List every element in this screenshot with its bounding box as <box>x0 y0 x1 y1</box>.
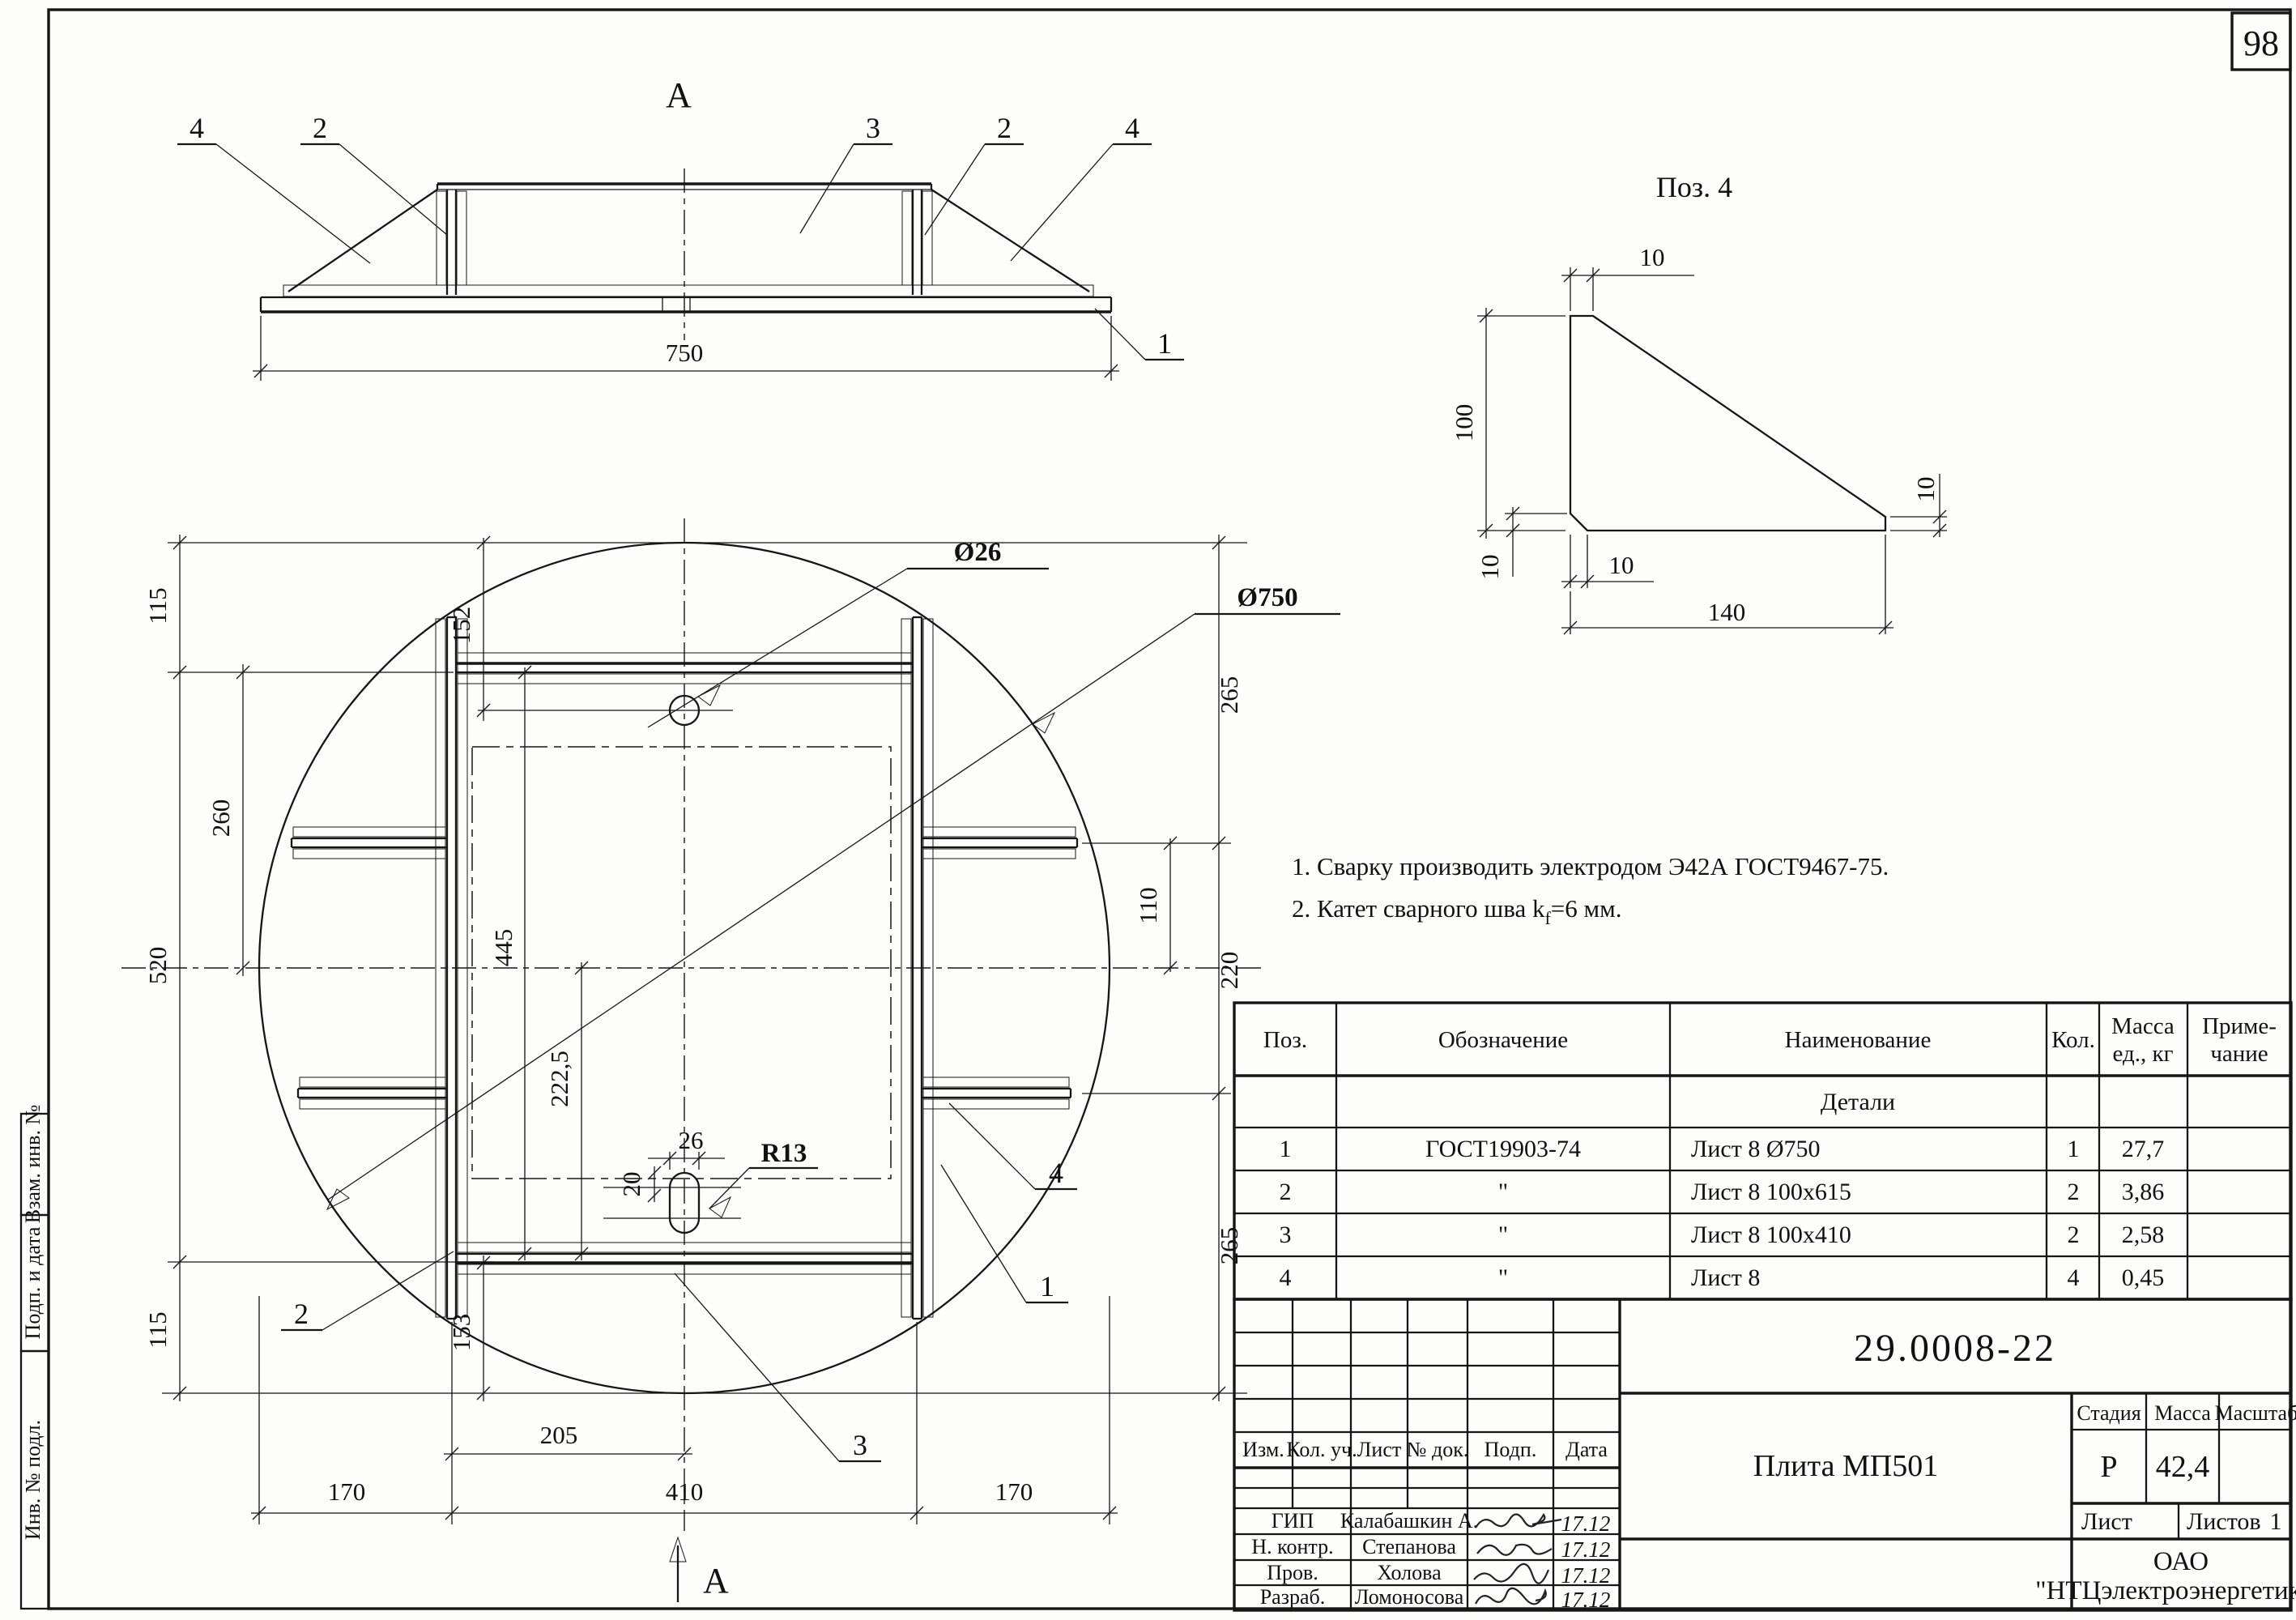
part-callout-1: 1 <box>1157 327 1172 360</box>
part-callout-4: 4 <box>1125 112 1139 144</box>
cell-mass: 27,7 <box>2122 1136 2165 1162</box>
detail-title: Поз. 4 <box>1656 171 1732 203</box>
callout-hole-dia: Ø26 <box>954 538 1002 567</box>
cell-mass: 0,45 <box>2122 1264 2165 1291</box>
dim-label-115-top: 115 <box>143 587 172 624</box>
signer-name: Ломоносова <box>1355 1585 1464 1609</box>
rev-header-kol: Кол. уч. <box>1286 1438 1357 1461</box>
rev-header-list: Лист <box>1357 1438 1401 1461</box>
spec-row-4: 4 " Лист 8 4 0,45 <box>1280 1264 2165 1291</box>
part-callout-2: 2 <box>313 112 327 144</box>
dim-label-140: 140 <box>1708 598 1746 626</box>
org-name-line2: "НТЦэлектроэнергетики" <box>2035 1576 2296 1605</box>
cell-pos: 3 <box>1280 1221 1292 1248</box>
spec-row-1: 1 ГОСТ19903-74 Лист 8 Ø750 1 27,7 <box>1280 1136 2165 1162</box>
dim-label-153: 153 <box>447 1314 475 1352</box>
dim-label-265-bottom: 265 <box>1215 1227 1243 1265</box>
rev-header-doc: № док. <box>1407 1438 1469 1461</box>
cell-mass: 2,58 <box>2122 1221 2165 1248</box>
dim-label-750: 750 <box>666 339 704 367</box>
signer-role: Пров. <box>1267 1561 1318 1584</box>
dim-label-10-top: 10 <box>1640 243 1665 271</box>
dim-label-10-right: 10 <box>1911 477 1940 502</box>
spec-header-note: чание <box>2210 1041 2268 1067</box>
side-view-label: А <box>666 75 692 115</box>
cell-designation: " <box>1498 1264 1508 1291</box>
dim-label-100: 100 <box>1450 404 1478 442</box>
cell-qty: 4 <box>2068 1264 2080 1291</box>
plan-view <box>121 518 1340 1602</box>
doc-number: 29.0008-22 <box>1854 1327 2056 1370</box>
spec-header-mass: ед., кг <box>2113 1041 2174 1067</box>
dim-label-205: 205 <box>540 1421 578 1449</box>
part-callout-2: 2 <box>997 112 1012 144</box>
spec-header-qty: Кол. <box>2051 1027 2095 1053</box>
cell-name: Лист 8 Ø750 <box>1691 1136 1821 1162</box>
cell-designation: ГОСТ19903-74 <box>1425 1136 1581 1162</box>
callout-slot-radius: R13 <box>761 1139 807 1168</box>
callout-plate-dia: Ø750 <box>1237 583 1297 612</box>
drawing-canvas: 98 Взам. инв. № Подп. и дата Инв. № подл… <box>0 0 2296 1620</box>
sheets-label: Листов <box>2187 1508 2261 1535</box>
dim-label-265-top: 265 <box>1215 676 1243 714</box>
mass-value: 42,4 <box>2156 1450 2210 1484</box>
part-callout-1: 1 <box>1040 1270 1054 1302</box>
rev-header-izm: Изм. <box>1242 1438 1284 1461</box>
signer-name: Степанова <box>1362 1535 1456 1558</box>
note-line-2: 2. Катет сварного шва kf=6 мм. <box>1292 894 1622 928</box>
dim-label-20: 20 <box>617 1172 645 1197</box>
cell-qty: 1 <box>2068 1136 2080 1162</box>
rev-header-podp: Подп. <box>1485 1438 1537 1461</box>
cell-pos: 2 <box>1280 1179 1292 1205</box>
drawing-sheet: 98 Взам. инв. № Подп. и дата Инв. № подл… <box>0 0 2296 1620</box>
signer-row-gip: ГИП Калабашкин А. 17.12 <box>1272 1509 1611 1536</box>
stage-value: Р <box>2100 1450 2117 1484</box>
dim-label-445: 445 <box>489 929 518 967</box>
dim-label-170-right: 170 <box>995 1477 1033 1506</box>
spec-header-pos: Поз. <box>1263 1027 1307 1053</box>
signer-role: Разраб. <box>1260 1585 1326 1609</box>
cell-pos: 4 <box>1280 1264 1292 1291</box>
dim-label-26: 26 <box>679 1126 704 1154</box>
part-callout-3: 3 <box>853 1429 867 1461</box>
dim-label-222-5: 222,5 <box>545 1051 573 1107</box>
cell-name: Лист 8 <box>1691 1264 1760 1291</box>
cell-mass: 3,86 <box>2122 1179 2165 1205</box>
signature-scribble <box>1477 1545 1552 1555</box>
signer-date: 17.12 <box>1561 1563 1611 1588</box>
mass-label: Масса <box>2154 1401 2211 1425</box>
stage-label: Стадия <box>2077 1401 2141 1425</box>
cell-pos: 1 <box>1280 1136 1292 1162</box>
part-callout-4: 4 <box>190 112 204 144</box>
dim-label-10-chamfer-h: 10 <box>1609 551 1634 579</box>
signer-row-prov: Пров. Холова 17.12 <box>1267 1561 1610 1588</box>
drawing-title: Плита МП501 <box>1753 1449 1938 1483</box>
note-line-1: 1. Сварку производить электродом Э42А ГО… <box>1292 852 1889 880</box>
signer-date: 17.12 <box>1561 1537 1611 1562</box>
dim-label-520: 520 <box>143 947 172 985</box>
spec-group-row: Детали <box>1821 1089 1895 1115</box>
scale-label: Масштаб <box>2215 1401 2296 1425</box>
dim-label-115-bottom: 115 <box>143 1311 172 1348</box>
stamp-inv-podl: Инв. № подл. <box>21 1420 45 1540</box>
part-callout-3: 3 <box>866 112 880 144</box>
signer-name: Холова <box>1377 1561 1442 1584</box>
signer-name: Калабашкин А. <box>1340 1509 1478 1533</box>
signer-role: ГИП <box>1272 1509 1314 1533</box>
spec-header-designation: Обозначение <box>1438 1027 1568 1053</box>
dim-label-10-chamfer-v: 10 <box>1476 555 1504 580</box>
signature-scribble <box>1476 1514 1561 1528</box>
dim-label-260: 260 <box>207 799 235 838</box>
dim-label-410: 410 <box>666 1477 704 1506</box>
dim-label-152: 152 <box>447 607 475 645</box>
sheet-number: 98 <box>2243 23 2279 63</box>
cell-qty: 2 <box>2068 1179 2080 1205</box>
section-label: А <box>703 1561 729 1601</box>
spec-header-name: Наименование <box>1785 1027 1932 1053</box>
org-name-line1: ОАО <box>2153 1547 2209 1576</box>
signature-scribble <box>1476 1588 1546 1604</box>
spec-header-note: Приме- <box>2202 1013 2277 1039</box>
stamp-podp-data: Подп. и дата <box>21 1226 45 1339</box>
cell-name: Лист 8 100x410 <box>1691 1221 1851 1248</box>
part-callout-4: 4 <box>1049 1157 1063 1189</box>
signer-role: Н. контр. <box>1251 1535 1333 1558</box>
rev-header-data: Дата <box>1565 1438 1608 1461</box>
signature-scribble <box>1474 1564 1548 1584</box>
detail-view-poz4 <box>1477 267 1947 634</box>
signer-date: 17.12 <box>1561 1511 1611 1536</box>
sheet-label: Лист <box>2081 1508 2132 1535</box>
dim-label-110: 110 <box>1134 887 1162 923</box>
stamp-vzam-inv: Взам. инв. № <box>21 1105 45 1224</box>
spec-row-3: 3 " Лист 8 100x410 2 2,58 <box>1280 1221 2165 1248</box>
signer-date: 17.12 <box>1561 1588 1611 1612</box>
sheets-value: 1 <box>2270 1508 2282 1535</box>
spec-header-mass: Масса <box>2111 1013 2175 1039</box>
cell-designation: " <box>1498 1179 1508 1205</box>
dim-label-170-left: 170 <box>328 1477 366 1506</box>
notes: 1. Сварку производить электродом Э42А ГО… <box>1292 852 1889 928</box>
cell-qty: 2 <box>2068 1221 2080 1248</box>
part-callout-2: 2 <box>294 1298 309 1330</box>
spec-row-2: 2 " Лист 8 100x615 2 3,86 <box>1280 1179 2165 1205</box>
dim-label-220: 220 <box>1215 952 1243 990</box>
cell-name: Лист 8 100x615 <box>1691 1179 1851 1205</box>
cell-designation: " <box>1498 1221 1508 1248</box>
signer-row-nkontr: Н. контр. Степанова 17.12 <box>1251 1535 1610 1562</box>
